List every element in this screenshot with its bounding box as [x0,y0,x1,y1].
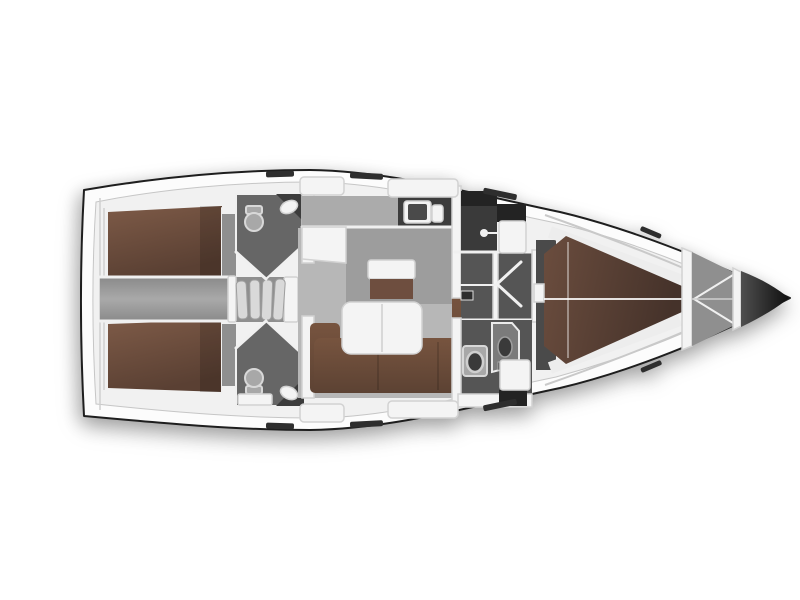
deck-vent [266,171,294,178]
berth-shading [200,206,222,276]
galley-return-counter [302,227,346,263]
skylight-hatch [300,404,344,422]
bow-tip [741,271,789,327]
companionway-steps [228,276,298,322]
passage-floor [100,277,234,321]
cabin-floor-starboard [222,324,236,386]
steps-rail-left [228,276,236,322]
sliding-hatch [388,401,458,418]
bow [682,248,789,350]
floor-plan-canvas [0,0,800,600]
sliding-hatch [388,179,458,197]
side-seat-top [368,260,415,279]
skylight-hatch [300,177,344,195]
berth-shading [200,322,222,392]
berth-step [534,284,544,302]
sink-small [432,205,443,222]
wardrobe-bottom [500,360,530,390]
yacht-hull [81,170,790,430]
locker-dark-top [497,204,526,222]
deck-vent [266,423,294,430]
wet-wall-left [452,186,461,298]
sink-basin [408,204,427,220]
aft-passage [100,277,234,321]
step-3 [261,280,272,320]
mid-passage [455,250,538,322]
bow-beam [733,268,741,330]
wardrobe-top [499,221,526,253]
toilet-icon [245,213,263,231]
head-wall-left [452,318,461,404]
floor-plan-image [0,0,800,600]
switch-panel [461,291,473,300]
side-seat-base [370,279,413,299]
cabin-floor-port [222,214,236,276]
aft-cabin-starboard [104,320,236,392]
bow-bulkhead [682,248,692,350]
aft-cabin-port [104,206,236,278]
toilet-icon [467,352,483,372]
step-1 [236,281,248,319]
step-2 [250,280,261,319]
shower-tray [238,394,272,405]
toilet-icon [245,369,263,387]
step-4 [273,279,286,321]
steps-rail-right [284,277,298,322]
cubicle-seat [498,337,512,357]
